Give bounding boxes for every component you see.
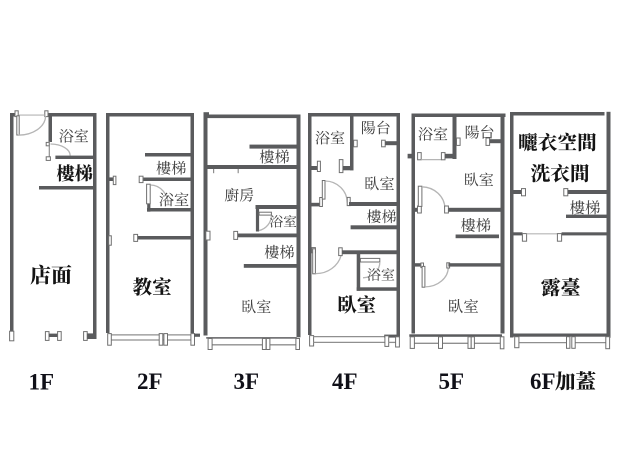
svg-text:3F: 3F [234, 369, 260, 394]
svg-text:4F: 4F [332, 369, 358, 394]
svg-text:6F: 6F [530, 369, 556, 394]
svg-text:1F: 1F [29, 370, 55, 395]
svg-text:5F: 5F [439, 369, 465, 394]
svg-text:2F: 2F [137, 369, 163, 394]
